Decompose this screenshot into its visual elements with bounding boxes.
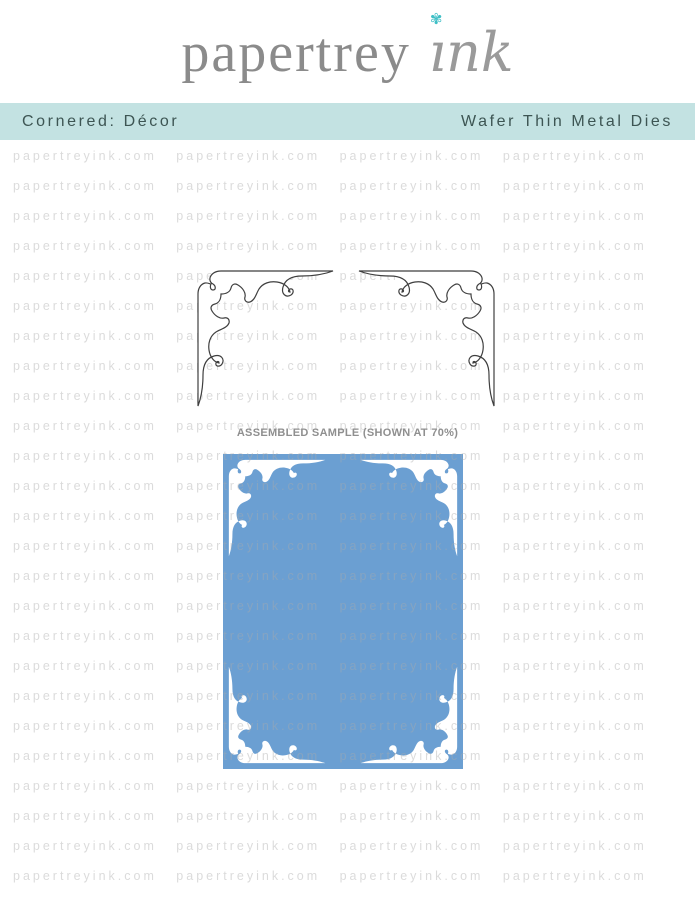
- die-outline-left: [198, 271, 333, 406]
- assembled-sample-card: [223, 454, 463, 769]
- product-type-title: Wafer Thin Metal Dies: [461, 113, 673, 131]
- watermark-row: papertreyink.com papertreyink.com papert…: [0, 201, 695, 231]
- card-corner-flourish-top-left: [226, 457, 326, 557]
- papertrey-ink-logo: papertreyınk✾: [0, 18, 695, 102]
- watermark-row: papertreyink.com papertreyink.com papert…: [0, 861, 695, 891]
- sample-label: ASSEMBLED SAMPLE (SHOWN AT 70%): [0, 427, 695, 439]
- product-image: papertreyınk✾ Cornered: Décor Wafer Thin…: [0, 0, 695, 900]
- logo-ink-text: ınk✾: [429, 18, 514, 88]
- die-outline-right: [359, 271, 494, 406]
- watermark-row: papertreyink.com papertreyink.com papert…: [0, 831, 695, 861]
- watermark-row: papertreyink.com papertreyink.com papert…: [0, 771, 695, 801]
- logo-ink-letters: ınk: [429, 21, 514, 84]
- watermark-row: papertreyink.com papertreyink.com papert…: [0, 171, 695, 201]
- card-corner-flourish-bottom-left: [226, 666, 326, 766]
- watermark-row: papertreyink.com papertreyink.com papert…: [0, 141, 695, 171]
- card-corner-flourish-top-right: [360, 457, 460, 557]
- logo-papertrey-text: papertrey: [181, 22, 410, 84]
- card-corner-flourish-bottom-right: [360, 666, 460, 766]
- watermark-row: papertreyink.com papertreyink.com papert…: [0, 801, 695, 831]
- product-banner: Cornered: Décor Wafer Thin Metal Dies: [0, 103, 695, 140]
- corner-die-outlines: [193, 266, 499, 408]
- flower-icon: ✾: [430, 12, 443, 27]
- watermark-row: papertreyink.com papertreyink.com papert…: [0, 231, 695, 261]
- product-name-title: Cornered: Décor: [22, 113, 179, 131]
- watermark-row: papertreyink.com papertreyink.com papert…: [0, 891, 695, 900]
